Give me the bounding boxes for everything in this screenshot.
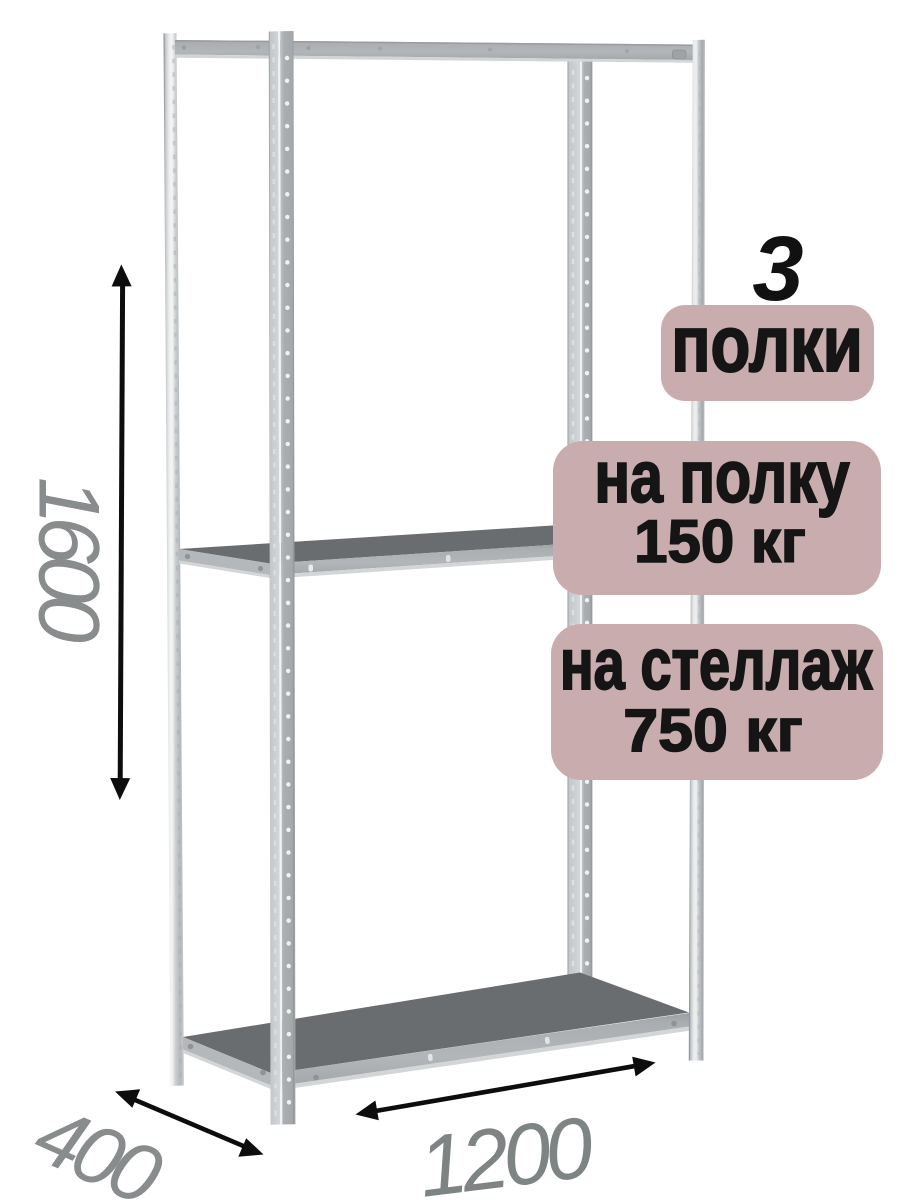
- svg-text:1200: 1200: [413, 1099, 598, 1200]
- svg-text:полки: полки: [671, 300, 863, 388]
- svg-text:400: 400: [22, 1087, 175, 1200]
- svg-text:150 кг: 150 кг: [634, 508, 806, 575]
- svg-text:1600: 1600: [20, 477, 116, 643]
- svg-text:на стеллаж: на стеллаж: [560, 624, 873, 704]
- svg-text:750 кг: 750 кг: [623, 697, 803, 764]
- svg-text:на полку: на полку: [594, 437, 849, 518]
